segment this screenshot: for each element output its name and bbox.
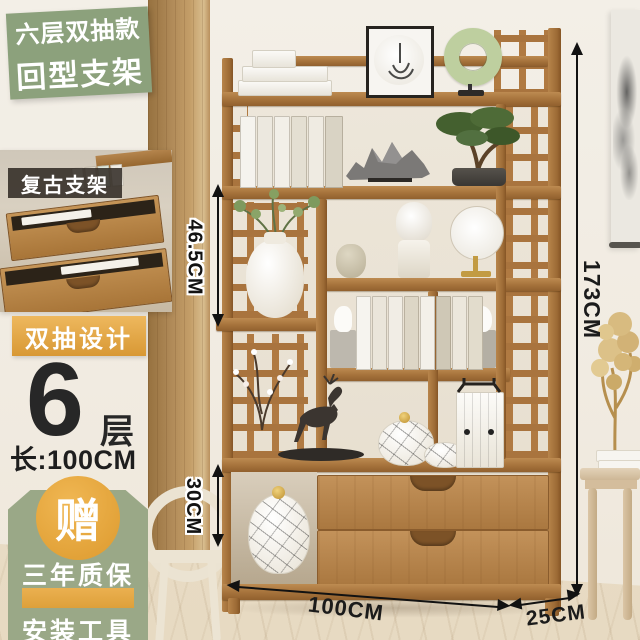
scholar-rock-sculpture (342, 134, 434, 186)
bronze-deer-statue (280, 374, 360, 458)
center-book-row (356, 296, 483, 370)
cabinet-dot (488, 429, 494, 435)
drawer-height-label: 30CM (181, 478, 204, 535)
length-spec-text: 长:100CM (10, 438, 137, 477)
jar-knob (399, 412, 410, 423)
hanging-scroll-painting (611, 10, 640, 248)
arrow-left-icon (226, 579, 240, 592)
badge-line1: 六层双抽款 (14, 9, 141, 50)
arrow-down-icon (212, 314, 224, 327)
shelf-board-3-left (216, 318, 324, 331)
drawer-handle (410, 476, 456, 491)
buddha-head-statue (396, 202, 432, 242)
upper-height-label: 46.5CM (183, 219, 206, 295)
cabinet-handle (454, 376, 504, 394)
drawer-handle (410, 531, 456, 546)
arrow-right-icon (567, 588, 582, 602)
total-height-label: 173CM (578, 260, 605, 339)
deer-tray (278, 448, 364, 461)
buddha-pedestal (398, 240, 430, 278)
dimension-line (217, 192, 219, 318)
retro-label: 复古支架 (8, 168, 122, 198)
shelf-board-3-right (318, 278, 561, 291)
white-deer-bookend (334, 306, 352, 332)
console-table-leg (623, 488, 632, 620)
white-box-stack (238, 80, 332, 96)
badge-line2: 回型支架 (15, 47, 145, 98)
chair-seat (147, 550, 231, 563)
top-feature-badge: 六层双抽款 回型支架 (6, 6, 152, 99)
console-table-leg (588, 488, 597, 620)
bonsai-pot (452, 168, 506, 186)
scroll-rod (609, 242, 640, 248)
gold-divider-bar (22, 588, 134, 608)
drawer-upper (317, 475, 549, 530)
fan-stand-base (461, 271, 491, 277)
arrow-down-icon (212, 534, 224, 547)
console-table-top (580, 468, 640, 480)
framed-circle-artwork (366, 26, 434, 98)
disc-stand-base (458, 90, 484, 96)
bookend-block (330, 330, 356, 368)
tools-text: 安装工具 (8, 612, 148, 640)
arrow-up-icon (212, 464, 224, 477)
jar-knob (272, 486, 285, 499)
white-mini-cabinet (456, 392, 504, 468)
gift-circle-badge: 赠 (36, 476, 120, 560)
right-post (548, 28, 561, 612)
fan-stand-stem (473, 256, 478, 272)
dimension-line (217, 472, 219, 538)
white-box-stack (242, 66, 328, 82)
jade-bi-disc (444, 28, 502, 86)
white-vase (246, 240, 304, 318)
product-image: 46.5CM 30CM 173CM 100CM 25CM 六层双抽款 回型支架 (0, 0, 640, 640)
arrow-up-icon (212, 184, 224, 197)
vertical-book-set (240, 116, 343, 188)
small-jar (336, 244, 366, 278)
arrow-up-icon (571, 42, 583, 55)
vase-mouth (264, 232, 286, 244)
drawer-lower (317, 530, 549, 586)
warranty-text: 三年质保 (8, 556, 148, 592)
cabinet-dot (464, 429, 470, 435)
arrow-left-icon (508, 598, 523, 612)
white-box-small (252, 50, 296, 68)
round-fan (450, 206, 504, 260)
ink-artwork (613, 50, 638, 200)
ginger-jar-cubby (248, 494, 310, 574)
layer-count-number: 6 (26, 348, 84, 452)
retro-detail-inset-photo: 复古支架 (0, 150, 172, 312)
shelf-leg (228, 598, 240, 614)
